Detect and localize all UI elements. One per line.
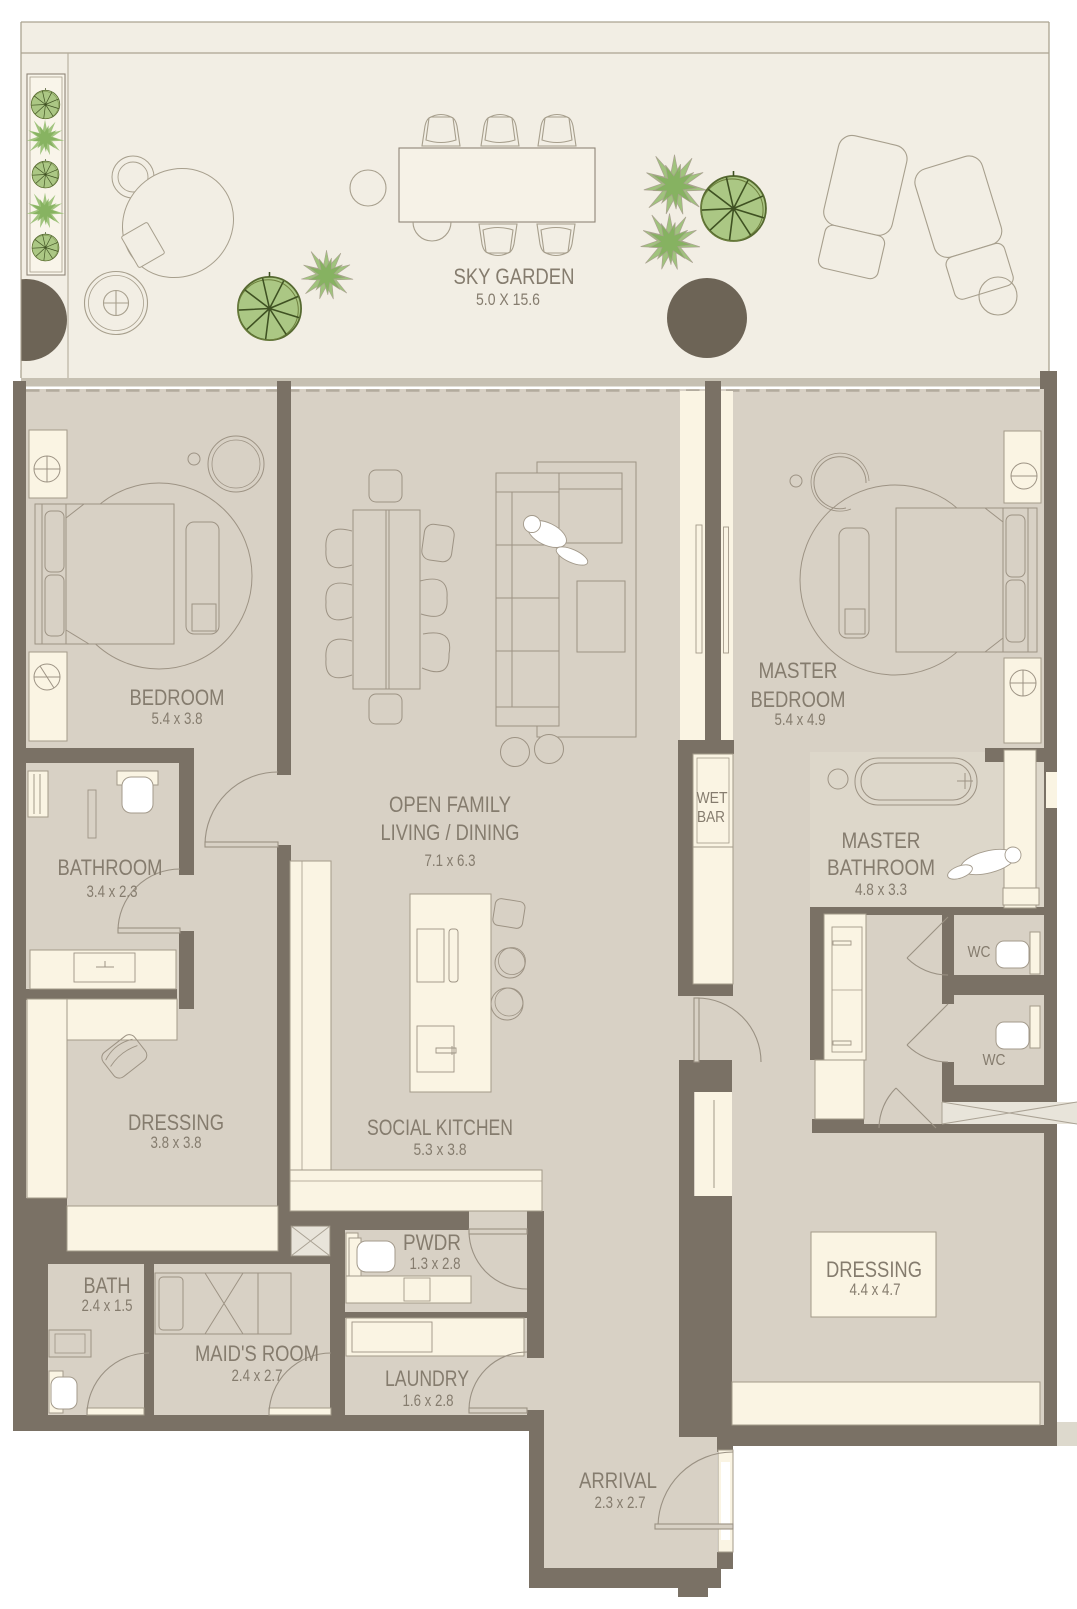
svg-text:3.8 x 3.8: 3.8 x 3.8 — [151, 1134, 202, 1152]
svg-text:5.4 x 3.8: 5.4 x 3.8 — [152, 710, 203, 728]
svg-text:LAUNDRY: LAUNDRY — [385, 1366, 469, 1391]
svg-text:5.0 X 15.6: 5.0 X 15.6 — [476, 291, 540, 309]
svg-text:5.4 x 4.9: 5.4 x 4.9 — [775, 711, 826, 729]
svg-text:WET: WET — [697, 790, 728, 807]
svg-text:BAR: BAR — [697, 809, 725, 826]
svg-text:MAID'S ROOM: MAID'S ROOM — [195, 1341, 319, 1366]
svg-text:SKY GARDEN: SKY GARDEN — [454, 264, 575, 289]
svg-text:7.1 x 6.3: 7.1 x 6.3 — [425, 852, 476, 870]
svg-text:4.8 x 3.3: 4.8 x 3.3 — [855, 881, 907, 899]
svg-text:WC: WC — [983, 1052, 1006, 1069]
svg-text:BATH: BATH — [84, 1273, 131, 1298]
svg-text:BEDROOM: BEDROOM — [130, 685, 225, 710]
svg-text:BEDROOM: BEDROOM — [751, 687, 846, 712]
svg-text:DRESSING: DRESSING — [826, 1257, 922, 1282]
svg-text:3.4 x 2.3: 3.4 x 2.3 — [87, 883, 138, 901]
svg-text:4.4 x 4.7: 4.4 x 4.7 — [850, 1281, 901, 1299]
svg-text:LIVING / DINING: LIVING / DINING — [381, 820, 520, 845]
svg-text:DRESSING: DRESSING — [128, 1110, 224, 1135]
svg-text:BATHROOM: BATHROOM — [58, 855, 163, 880]
svg-text:BATHROOM: BATHROOM — [827, 855, 935, 880]
svg-text:2.3 x 2.7: 2.3 x 2.7 — [595, 1494, 646, 1512]
svg-text:OPEN FAMILY: OPEN FAMILY — [389, 792, 511, 817]
svg-text:PWDR: PWDR — [403, 1230, 461, 1255]
svg-text:MASTER: MASTER — [842, 828, 921, 853]
svg-text:1.3 x 2.8: 1.3 x 2.8 — [410, 1255, 461, 1273]
svg-text:2.4 x 2.7: 2.4 x 2.7 — [232, 1367, 283, 1385]
svg-text:WC: WC — [968, 944, 991, 961]
svg-text:SOCIAL KITCHEN: SOCIAL KITCHEN — [367, 1115, 513, 1140]
svg-text:MASTER: MASTER — [759, 658, 838, 683]
svg-text:5.3 x 3.8: 5.3 x 3.8 — [414, 1141, 467, 1159]
svg-text:ARRIVAL: ARRIVAL — [579, 1468, 657, 1493]
svg-text:2.4 x 1.5: 2.4 x 1.5 — [82, 1297, 133, 1315]
svg-text:1.6 x 2.8: 1.6 x 2.8 — [403, 1392, 454, 1410]
